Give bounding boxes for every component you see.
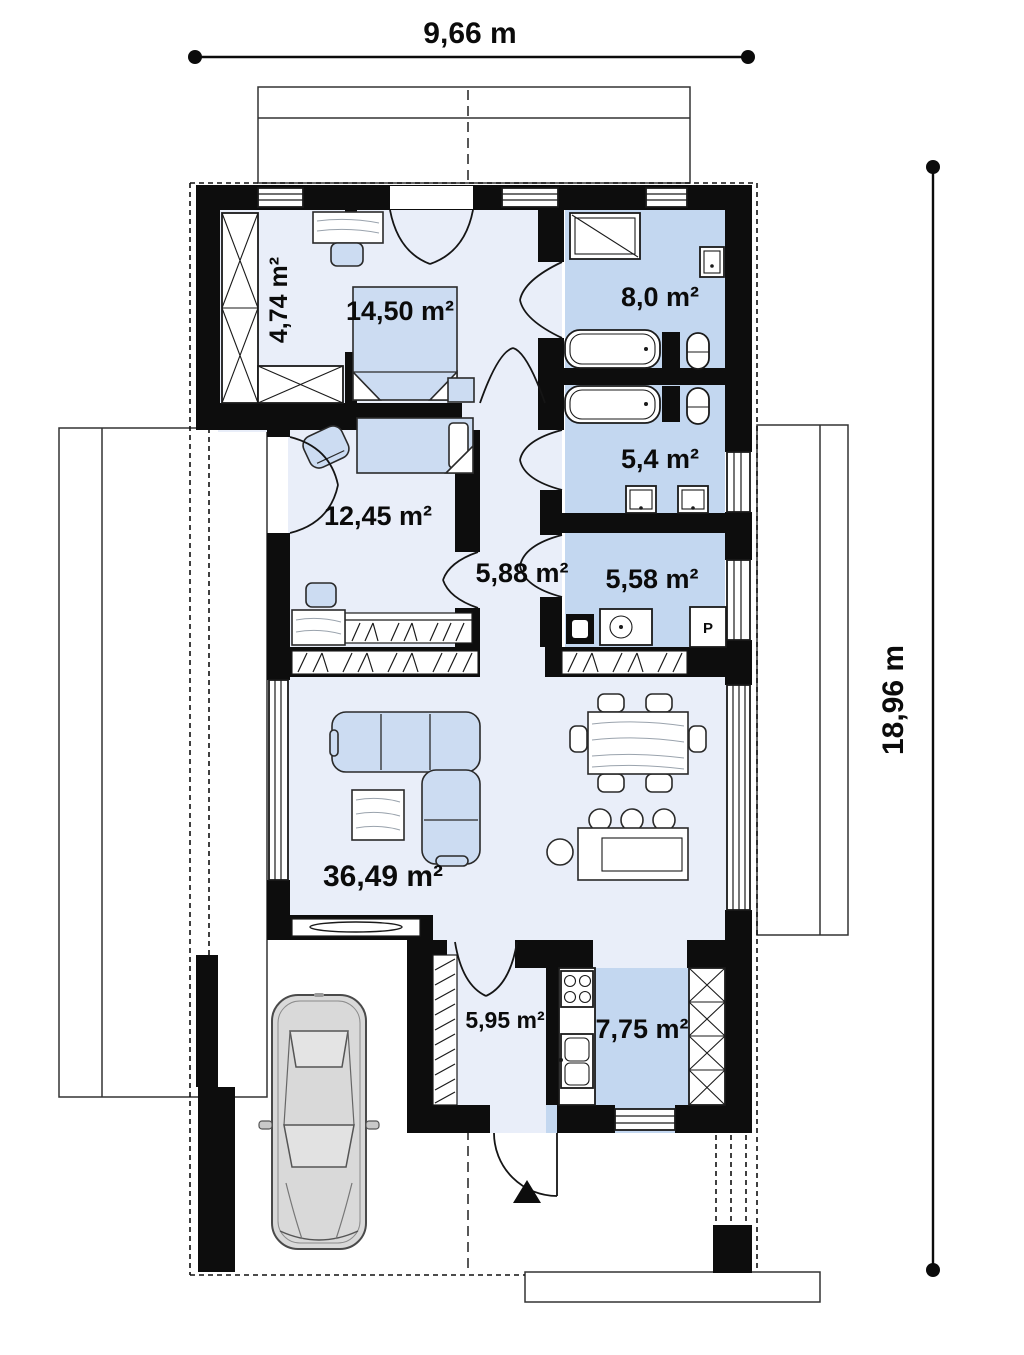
room-label-bedroom-2: 12,45 m² (324, 501, 432, 531)
sliding-door-living (292, 919, 420, 936)
shower (570, 213, 640, 259)
bathtub-1 (565, 330, 660, 368)
dimension-top: 9,66 m (188, 17, 755, 64)
terrace-right (757, 425, 848, 935)
laundry-sink (566, 614, 594, 644)
window-right-utility (727, 560, 750, 640)
floor-plan-page: 9,66 m 18,96 m (0, 0, 1024, 1355)
room-label-hallway: 5,88 m² (475, 558, 568, 588)
terrace-step-bottom (525, 1272, 820, 1302)
coat-rack-entry (433, 955, 457, 1105)
room-label-bathroom-2: 5,4 m² (621, 444, 699, 474)
kitchen-sink (559, 1034, 593, 1088)
entrance-arrow (513, 1180, 541, 1203)
window-left-living (269, 680, 288, 880)
dimension-top-label: 9,66 m (423, 17, 516, 50)
window-right-dining (727, 685, 750, 910)
window-top-3 (646, 188, 687, 207)
closet-rod-bedroom-2 (345, 613, 472, 643)
sink-bathroom-1 (700, 247, 724, 277)
pantry-shelves (689, 968, 725, 1105)
room-label-bedroom-1: 14,50 m² (346, 296, 454, 326)
transom-hatch-left (292, 651, 478, 674)
window-top-2 (502, 188, 558, 207)
room-label-wardrobe: 4,74 m² (265, 257, 293, 343)
dimension-right-label: 18,96 m (877, 645, 910, 755)
room-label-kitchen: 7,75 m² (595, 1014, 688, 1044)
room-label-living: 36,49 m² (323, 860, 443, 893)
stove (561, 971, 593, 1007)
terrace-left (59, 428, 267, 1097)
boiler: P (690, 607, 726, 647)
boiler-label: P (703, 620, 713, 637)
washing-machine (600, 609, 652, 645)
transom-hatch-right (562, 651, 687, 674)
room-label-utility: 5,58 m² (605, 564, 698, 594)
roof-outline-top (258, 87, 690, 183)
floor-plan-drawing: 9,66 m 18,96 m (0, 0, 1024, 1355)
nightstand (448, 378, 474, 402)
rug-coffee-table (352, 790, 404, 840)
window-right-bathroom-2 (727, 452, 750, 512)
toilet-1 (687, 333, 709, 369)
window-top-1 (258, 188, 303, 207)
bed-single (357, 418, 473, 473)
toilet-2 (687, 388, 709, 424)
dimension-right: 18,96 m (877, 160, 940, 1277)
window-kitchen (615, 1109, 675, 1130)
room-label-bathroom-1: 8,0 m² (621, 282, 699, 312)
room-label-entry: 5,95 m² (465, 1007, 545, 1033)
bathtub-2 (565, 386, 660, 423)
car (259, 993, 379, 1249)
